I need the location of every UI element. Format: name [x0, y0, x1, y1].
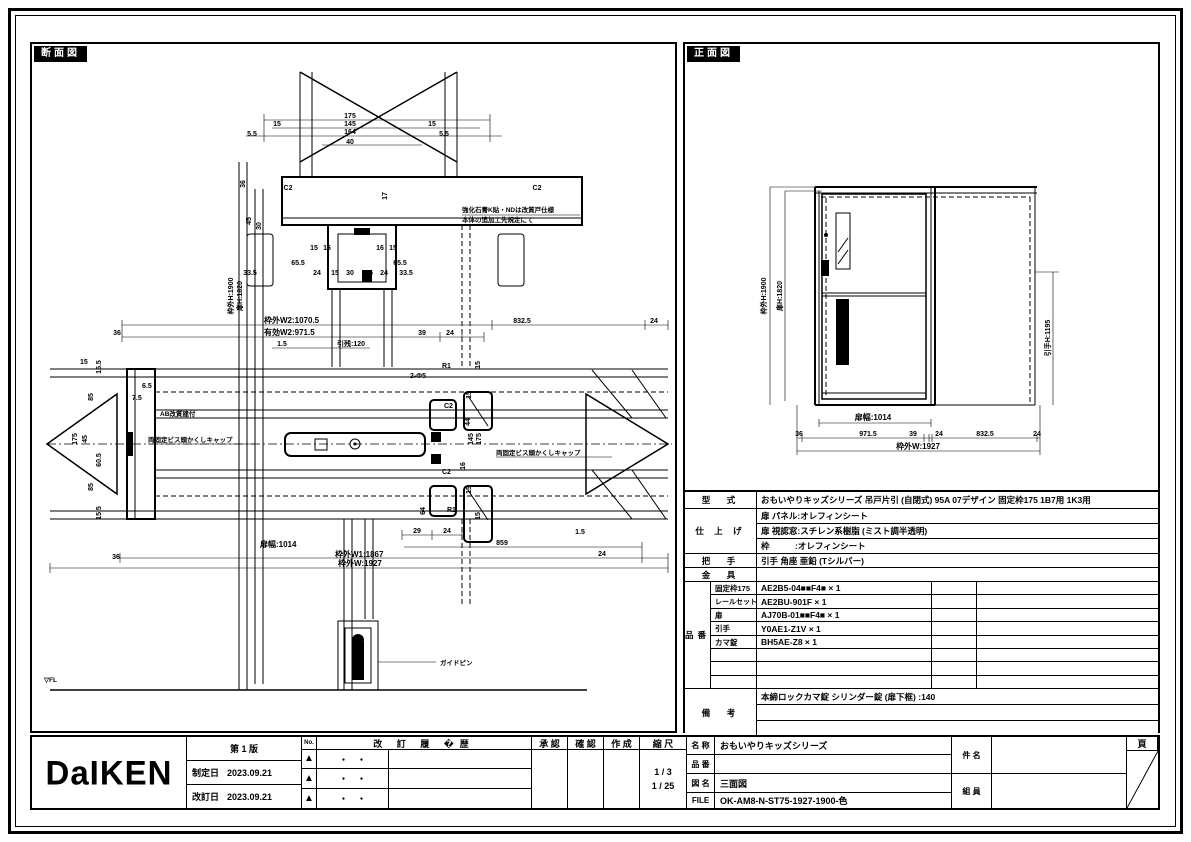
note-label: AB改質建付 [160, 409, 196, 418]
dim-label: 85 [88, 483, 95, 491]
dim-label: 15 [475, 361, 482, 369]
dim-label: 引残:120 [337, 339, 365, 348]
dim-label: 枠外W2:1070.5 [263, 315, 320, 325]
dim-label: 枠外W:1927 [895, 441, 940, 451]
note-labels: 強化石膏K貼・NDは改質戸仕様 本体の追加工先規定にて AB改質建付 両固定ビス… [43, 205, 581, 684]
spec-hardware-value [757, 568, 1158, 582]
dim-label: 16 [460, 462, 467, 470]
file-value: OK-AM8-N-ST75-1927-1900-色 [715, 793, 952, 808]
dim-label: 5.5 [247, 131, 257, 138]
dwg-label: 図 名 [687, 774, 715, 793]
note-label: 本体の追加工先規定にて [462, 215, 534, 224]
page-cell [1127, 751, 1158, 808]
dim-label: 64 [420, 507, 427, 515]
history-cell [389, 750, 532, 769]
approve-cell [532, 750, 568, 808]
dim-label: 65.5 [291, 260, 305, 267]
spec-model-value: おもいやりキッズシリーズ 吊戸片引 (自閉式) 95A 07デザイン 固定枠17… [757, 492, 1158, 509]
dim-label: 45 [246, 217, 253, 225]
dim-label: 45 [82, 435, 89, 443]
dim-label: 24 [935, 431, 943, 438]
dim-label: 859 [496, 540, 508, 547]
dim-label: 145 [468, 433, 475, 445]
dim-label: 145 [344, 121, 356, 128]
top-wall-brace [246, 72, 502, 177]
dim-label: 29 [413, 528, 421, 535]
dim-label: 24 [598, 551, 606, 558]
dim-label: C2 [284, 185, 293, 192]
dim-label: 扉幅:1014 [854, 412, 892, 422]
spec-model-label: 型 式 [685, 492, 757, 509]
spec-remarks-label: 備 考 [685, 689, 757, 737]
spec-part-name: カマ錠 [711, 636, 757, 649]
scale-value-1: 1 / 3 [654, 767, 672, 777]
dim-label: 832.5 [976, 431, 994, 438]
revision-mark: ▲ [302, 769, 317, 789]
enact-row: 制定日 2023.09.21 [187, 761, 302, 785]
section-view-drawing: 175 15 145 15 164 5.5 5.5 40 C2 C2 17 36… [32, 44, 675, 731]
enact-label: 制定日 [192, 766, 219, 779]
spec-finish-row: 扉 視認窓:スチレン系樹脂 (ミスト調半透明) [757, 524, 1158, 539]
dim-label: 6.5 [142, 383, 152, 390]
dim-label: 1.5 [575, 529, 585, 536]
spec-part-extra [977, 582, 1158, 595]
approve-header: 承 認 [532, 737, 568, 750]
revise-date: 2023.09.21 [227, 792, 272, 802]
dim-label: 36 [113, 330, 121, 337]
dim-label: 36 [112, 554, 120, 561]
dim-label: 15 [273, 121, 281, 128]
dim-label: 40 [346, 139, 354, 146]
spec-part-extra [932, 636, 977, 649]
note-label: 両固定ビス頭かくしキャップ [496, 448, 581, 457]
spec-part-extra [932, 676, 977, 689]
dim-label: 15.5 [96, 506, 103, 520]
subject-label: 件 名 [952, 737, 992, 774]
dim-label: C2 [442, 469, 451, 476]
spec-part-extra [932, 649, 977, 662]
dim-label: 175 [344, 113, 356, 120]
spec-part-code: AJ70B-01■■F4■ × 1 [757, 609, 932, 622]
dim-label: 15 [389, 245, 397, 252]
section-view-title: 断面図 [34, 46, 87, 62]
dim-label: 44 [465, 418, 472, 426]
scale-cell: 1 / 3 1 / 25 [640, 750, 687, 808]
dim-label: 60.5 [96, 453, 103, 467]
dim-label: 24 [380, 270, 388, 277]
dim-label: 引手H:1195 [1043, 320, 1052, 357]
page-header: 頁 [1127, 737, 1158, 751]
note-label: ガイドピン [440, 658, 473, 667]
dim-label: 1.5 [277, 341, 287, 348]
dim-label: 枠外H:1900 [226, 277, 235, 314]
dim-label: 枠外W:1927 [337, 558, 382, 568]
spec-part-extra [977, 609, 1158, 622]
enact-date: 2023.09.21 [227, 768, 272, 778]
spec-handle-label: 把 手 [685, 554, 757, 568]
no-header: No. [302, 737, 317, 750]
create-cell [604, 750, 640, 808]
dim-label: 24 [650, 318, 658, 325]
dim-label: 15 [428, 121, 436, 128]
pn-value [715, 755, 952, 774]
spec-part-code [757, 662, 932, 676]
dim-label: 有効W2:971.5 [264, 327, 315, 337]
dim-label: 15 [466, 391, 473, 399]
subject-value [992, 737, 1127, 774]
spec-part-extra [932, 609, 977, 622]
page-diagonal [1127, 751, 1158, 808]
spec-part-name: 引手 [711, 622, 757, 636]
revise-row: 改訂日 2023.09.21 [187, 785, 302, 808]
note-label: 強化石膏K貼・NDは改質戸仕様 [462, 205, 555, 214]
spec-part-extra [932, 622, 977, 636]
dimension-labels: 175 15 145 15 164 5.5 5.5 40 C2 C2 17 36… [72, 113, 658, 568]
history-cell: ・ ・ [317, 789, 389, 808]
history-cell [389, 769, 532, 789]
floor-level-mark: ▽FL [43, 677, 57, 684]
dim-label: 175 [476, 433, 483, 445]
edition-label: 第 1 版 [187, 737, 302, 761]
note-label: 両固定ビス頭かくしキャップ [148, 435, 233, 444]
revise-label: 改訂日 [192, 790, 219, 803]
scale-value-2: 1 / 25 [652, 781, 675, 791]
scale-header: 縮 尺 [640, 737, 687, 750]
dim-label: 15 [365, 270, 373, 277]
pn-label: 品 番 [687, 755, 715, 774]
spec-remarks-row [757, 705, 1158, 721]
dim-label: 164 [344, 129, 356, 136]
spec-finish-label: 仕 上 げ [685, 509, 757, 554]
spec-part-code: BH5AE-Z8 × 1 [757, 636, 932, 649]
dim-label: 15 [331, 270, 339, 277]
spec-part-name [711, 662, 757, 676]
dwg-value: 三面図 [715, 774, 952, 793]
dim-label: 832.5 [513, 318, 531, 325]
check-cell [568, 750, 604, 808]
spec-part-code [757, 676, 932, 689]
dim-label: 2-Φ5 [410, 373, 426, 380]
spec-part-extra [977, 595, 1158, 609]
dim-label: 枠外H:1900 [759, 277, 768, 314]
dim-label: 扉幅:1014 [259, 539, 297, 549]
dim-label: 16 [323, 245, 331, 252]
spec-part-code: AE2BU-901F × 1 [757, 595, 932, 609]
spec-handle-value: 引手 角座 亜鉛 (Tシルバー) [757, 554, 1158, 568]
check-header: 確 認 [568, 737, 604, 750]
spec-finish-row: 扉 パネル:オレフィンシート [757, 509, 1158, 524]
spec-part-extra [977, 662, 1158, 676]
door-elevation [770, 187, 1037, 405]
spec-part-extra [977, 676, 1158, 689]
front-view-drawing: 枠外H:1900 扉H:1820 引手H:1195 扉幅:1014 36 971… [685, 44, 1158, 490]
mid-dim-lines [122, 320, 668, 348]
dim-label: 85 [88, 393, 95, 401]
section-view-panel: 断面図 [30, 42, 677, 733]
spec-part-name: 固定枠175 [711, 582, 757, 595]
spec-part-extra [977, 649, 1158, 662]
dim-label: 16 [376, 245, 384, 252]
dim-label: 175 [72, 433, 79, 445]
daiken-logo: DaIKEN [32, 737, 187, 808]
spec-finish-row: 枠 :オレフィンシート [757, 539, 1158, 554]
spec-table: 型 式 おもいやりキッズシリーズ 吊戸片引 (自閉式) 95A 07デザイン 固… [685, 490, 1158, 735]
dim-label: 30 [346, 270, 354, 277]
name-value: おもいやりキッズシリーズ [715, 737, 952, 755]
spec-part-extra [932, 582, 977, 595]
front-view-title: 正面図 [687, 46, 740, 62]
dim-label: 36 [240, 180, 247, 188]
dim-label: 枠外W1:1867 [334, 549, 384, 559]
spec-part-extra [977, 636, 1158, 649]
dim-label: 24 [446, 330, 454, 337]
spec-part-name [711, 649, 757, 662]
dim-label: 7.5 [132, 395, 142, 402]
member-value [992, 774, 1127, 808]
spec-part-name [711, 676, 757, 689]
spec-part-extra [932, 662, 977, 676]
dim-label: 33.5 [243, 270, 257, 277]
dim-label: 17 [382, 192, 389, 200]
dim-label: 15 [475, 512, 482, 520]
dim-label: C2 [533, 185, 542, 192]
front-dim-labels: 枠外H:1900 扉H:1820 引手H:1195 扉幅:1014 36 971… [759, 277, 1052, 451]
dim-label: 24 [1033, 431, 1041, 438]
dim-label: 15 [80, 359, 88, 366]
dim-label: 扉H:1820 [775, 281, 784, 312]
spec-part-extra [932, 595, 977, 609]
spec-part-name: 扉 [711, 609, 757, 622]
spec-part-code [757, 649, 932, 662]
dim-label: 39 [418, 330, 426, 337]
dim-label: 33.5 [399, 270, 413, 277]
dim-label: 30 [256, 222, 263, 230]
revision-mark: ▲ [302, 789, 317, 808]
dim-label: C2 [444, 403, 453, 410]
daiken-logo-text: DaIKEN [45, 753, 172, 793]
spec-part-extra [977, 622, 1158, 636]
dim-label: 扉H:1820 [235, 281, 244, 312]
name-label: 名 称 [687, 737, 715, 755]
history-cell: ・ ・ [317, 750, 389, 769]
revision-mark: ▲ [302, 750, 317, 769]
spec-parts-label: 品番 [685, 582, 711, 689]
dim-label: R1 [447, 507, 456, 514]
frame-verticals [239, 162, 263, 690]
history-cell [389, 789, 532, 808]
header-assembly [247, 177, 582, 367]
dim-label: 971.5 [859, 431, 877, 438]
dim-label: 5.5 [439, 131, 449, 138]
dim-label: 15 [310, 245, 318, 252]
file-label: FILE [687, 793, 715, 808]
dim-label: 24 [443, 528, 451, 535]
dim-label: 15.5 [96, 360, 103, 374]
spec-part-code: Y0AE1-Z1V × 1 [757, 622, 932, 636]
spec-part-code: AE2B5-04■■F4■ × 1 [757, 582, 932, 595]
title-block: DaIKEN 第 1 版 制定日 2023.09.21 改訂日 2023.09.… [30, 735, 1160, 810]
front-view-panel: 正面図 [683, 42, 1160, 733]
member-label: 組 員 [952, 774, 992, 808]
create-header: 作 成 [604, 737, 640, 750]
dim-label: 15 [466, 486, 473, 494]
dim-label: 39 [909, 431, 917, 438]
dim-label: 24 [313, 270, 321, 277]
dim-label: 36 [795, 431, 803, 438]
spec-remarks-value: 本締ロックカマ錠 シリンダー錠 (扉下框) :140 [757, 689, 1158, 705]
history-header: 改 訂 履 �歴 [317, 737, 532, 750]
dim-label: R1 [442, 363, 451, 370]
spec-hardware-label: 金 具 [685, 568, 757, 582]
history-cell: ・ ・ [317, 769, 389, 789]
spec-part-name: レールセット [711, 595, 757, 609]
dim-label: 65.5 [393, 260, 407, 267]
